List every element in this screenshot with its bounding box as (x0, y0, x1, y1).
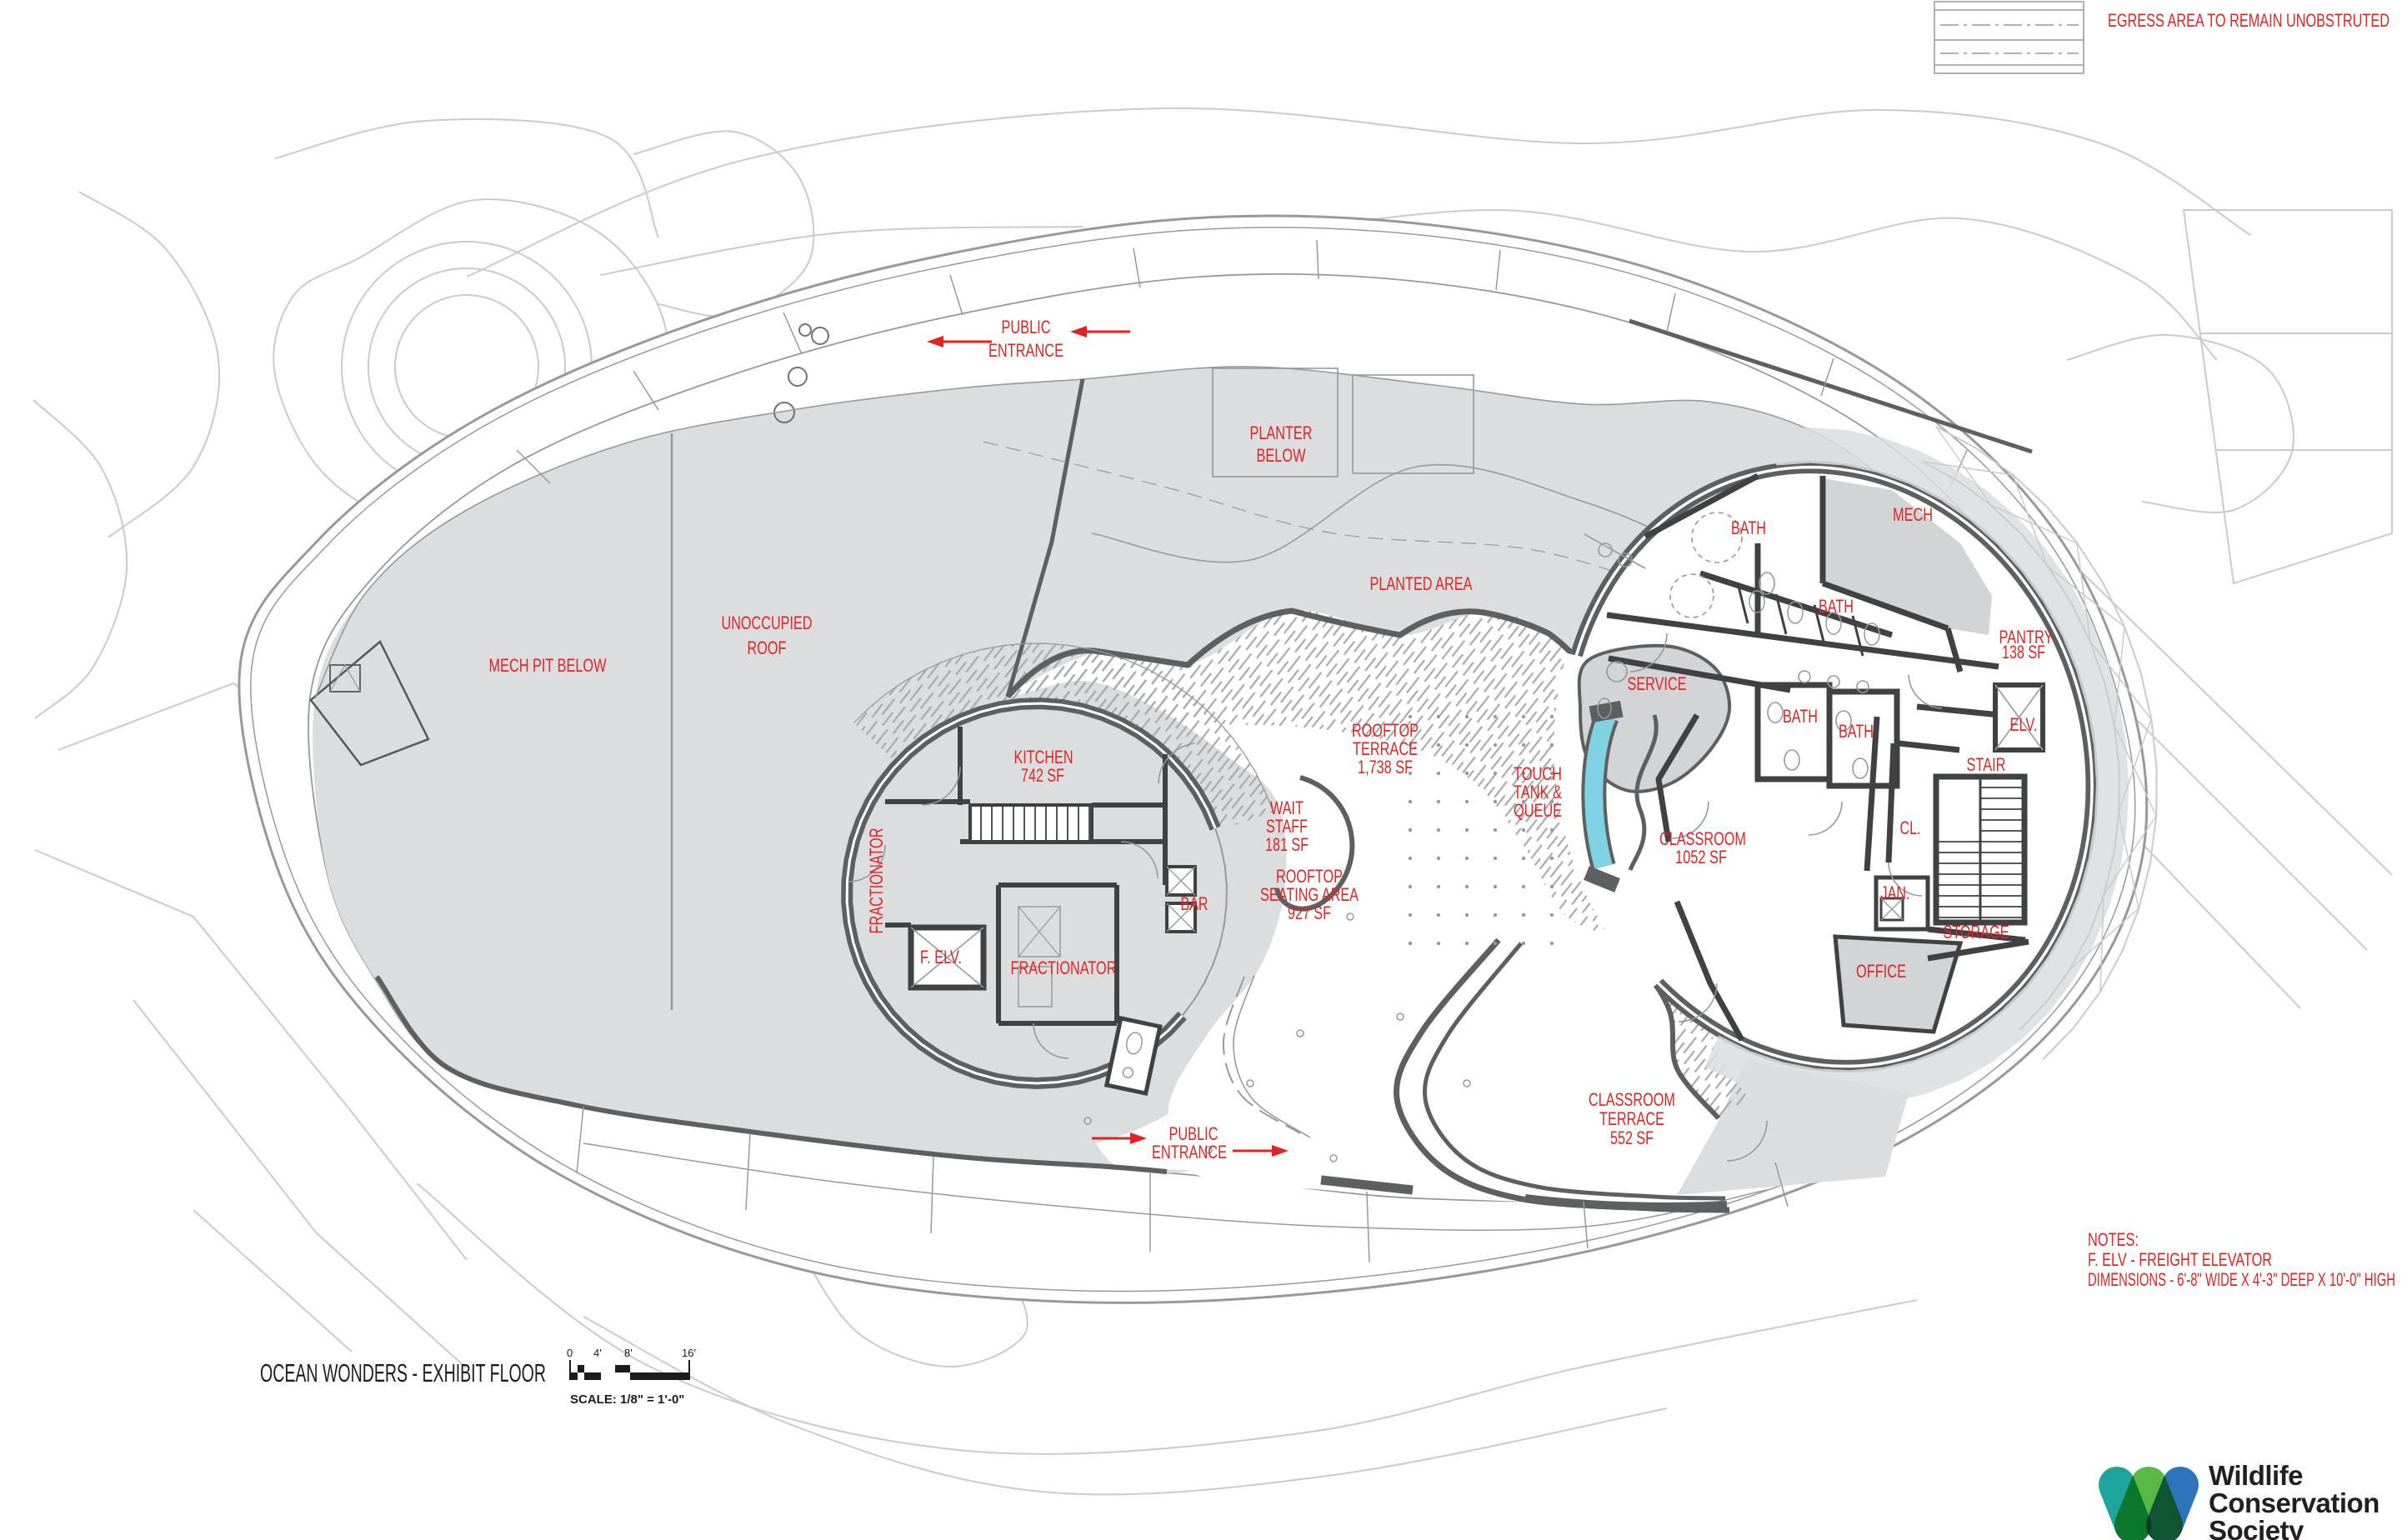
svg-text:QUEUE: QUEUE (1514, 800, 1562, 821)
svg-text:Conservation: Conservation (2209, 1487, 2379, 1518)
svg-text:SERVICE: SERVICE (1628, 673, 1687, 694)
svg-text:STAIR: STAIR (1967, 754, 2006, 775)
svg-text:BATH: BATH (1783, 706, 1818, 727)
svg-text:TERRACE: TERRACE (1599, 1108, 1664, 1129)
svg-text:ELV.: ELV. (2010, 714, 2038, 735)
svg-text:UNOCCUPIED: UNOCCUPIED (722, 612, 813, 633)
svg-text:ENTRANCE: ENTRANCE (988, 340, 1063, 361)
svg-text:SCALE: 1/8" = 1'-0": SCALE: 1/8" = 1'-0" (570, 1392, 684, 1407)
svg-text:552 SF: 552 SF (1610, 1127, 1654, 1148)
svg-text:181 SF: 181 SF (1265, 834, 1309, 855)
svg-text:742 SF: 742 SF (1021, 765, 1064, 786)
svg-text:FRACTIONATOR: FRACTIONATOR (866, 828, 887, 934)
svg-text:MECH: MECH (1893, 504, 1933, 525)
svg-text:4': 4' (593, 1347, 602, 1359)
svg-text:BELOW: BELOW (1257, 445, 1306, 466)
svg-text:Society: Society (2209, 1515, 2304, 1540)
svg-text:BAR: BAR (1181, 893, 1209, 914)
svg-text:F. ELV.: F. ELV. (920, 947, 962, 967)
svg-text:BATH: BATH (1819, 596, 1854, 617)
svg-text:1052 SF: 1052 SF (1675, 847, 1727, 867)
svg-text:EGRESS AREA TO REMAIN UNOBSTRU: EGRESS AREA TO REMAIN UNOBSTRUTED (2108, 10, 2389, 31)
svg-text:BATH: BATH (1839, 721, 1874, 742)
svg-text:BATH: BATH (1731, 517, 1766, 538)
svg-text:CLASSROOM: CLASSROOM (1589, 1089, 1675, 1110)
svg-text:1,738 SF: 1,738 SF (1358, 757, 1413, 777)
svg-text:F. ELV - FREIGHT ELEVATOR: F. ELV - FREIGHT ELEVATOR (2088, 1249, 2272, 1270)
svg-text:MECH PIT BELOW: MECH PIT BELOW (489, 655, 607, 676)
svg-text:ENTRANCE: ENTRANCE (1152, 1142, 1227, 1162)
svg-text:16': 16' (682, 1347, 696, 1359)
svg-text:NOTES:: NOTES: (2088, 1229, 2139, 1250)
svg-text:JAN.: JAN. (1881, 882, 1910, 903)
svg-text:PLANTER: PLANTER (1250, 422, 1313, 443)
svg-text:138 SF: 138 SF (2002, 642, 2045, 662)
svg-text:PUBLIC: PUBLIC (1002, 317, 1051, 337)
svg-text:OCEAN WONDERS - EXHIBIT FLOOR: OCEAN WONDERS - EXHIBIT FLOOR (260, 1358, 546, 1387)
svg-text:STORAGE: STORAGE (1944, 922, 2009, 942)
svg-text:Wildlife: Wildlife (2209, 1460, 2303, 1491)
svg-text:FRACTIONATOR: FRACTIONATOR (1011, 957, 1117, 978)
svg-text:PLANTED AREA: PLANTED AREA (1370, 573, 1473, 594)
svg-text:OFFICE: OFFICE (1856, 961, 1906, 982)
svg-text:ROOF: ROOF (748, 637, 787, 658)
svg-text:8': 8' (624, 1347, 633, 1359)
svg-text:CL.: CL. (1900, 817, 1921, 838)
svg-text:0: 0 (567, 1347, 573, 1359)
svg-text:927 SF: 927 SF (1288, 902, 1331, 923)
svg-text:DIMENSIONS - 6'-8" WIDE X 4'-3: DIMENSIONS - 6'-8" WIDE X 4'-3" DEEP X 1… (2088, 1269, 2395, 1290)
